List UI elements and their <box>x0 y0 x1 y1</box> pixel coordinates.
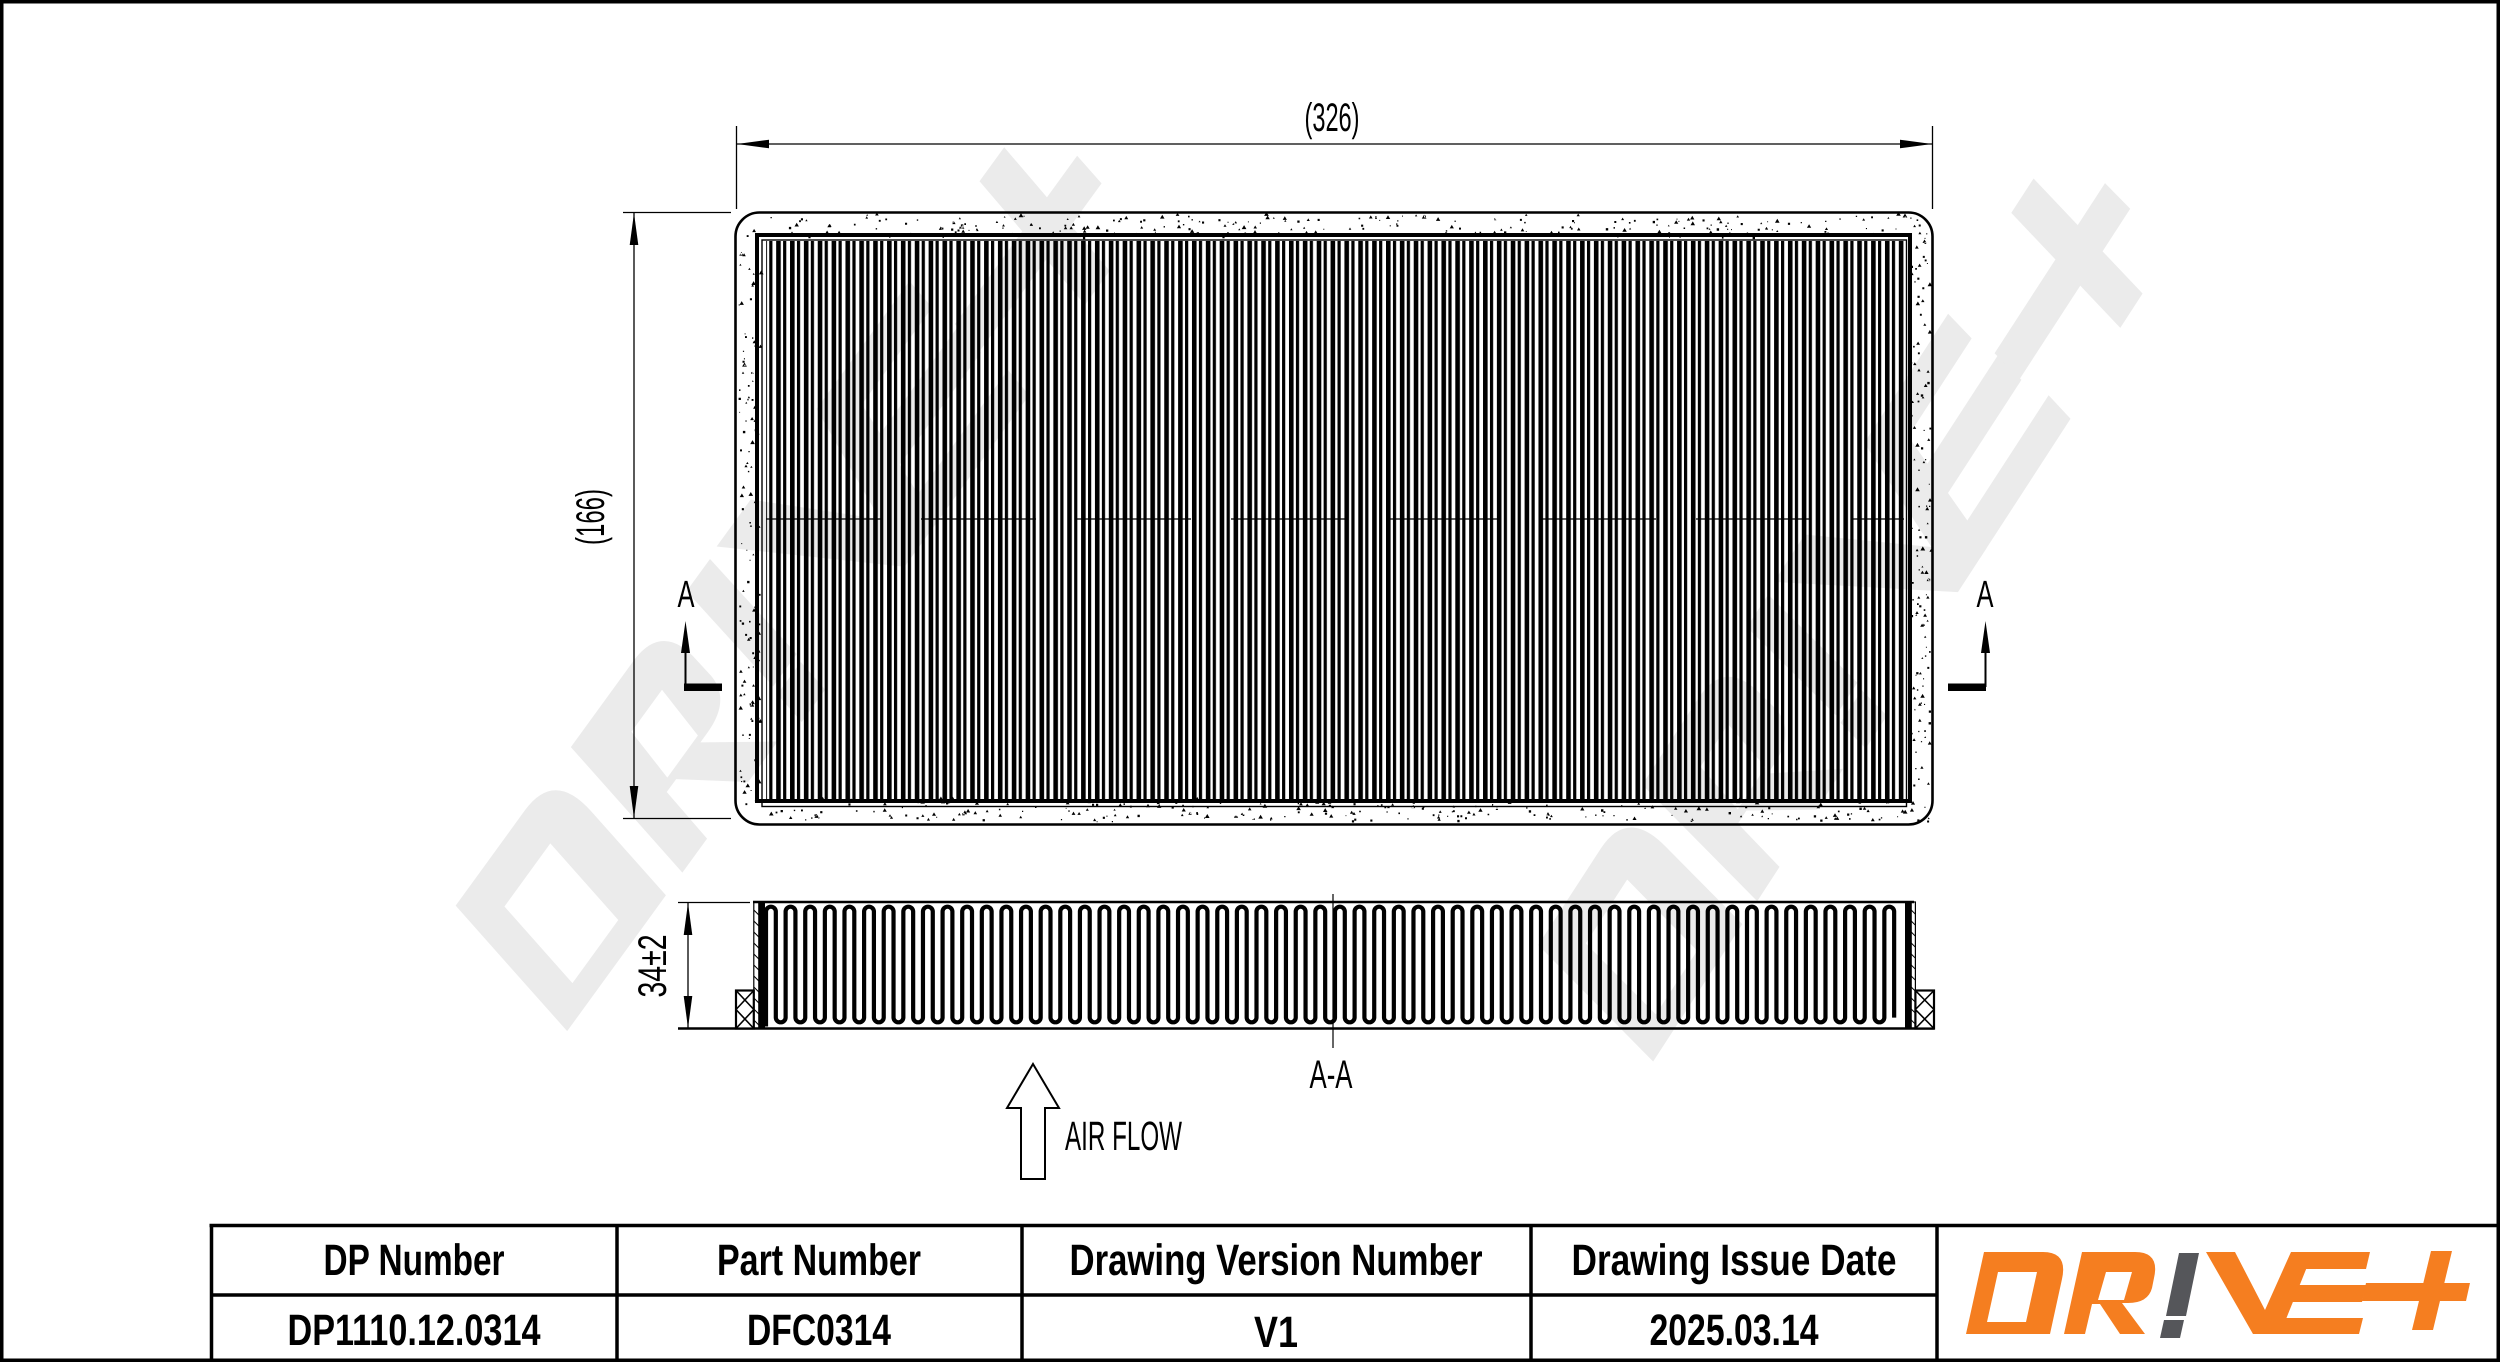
svg-text:Drawing Issue Date: Drawing Issue Date <box>1572 1236 1897 1285</box>
svg-text:DP Number: DP Number <box>324 1236 505 1285</box>
svg-text:(326): (326) <box>1305 96 1360 140</box>
svg-text:V1: V1 <box>1254 1308 1298 1357</box>
svg-text:Part Number: Part Number <box>717 1236 921 1285</box>
svg-text:34±2: 34±2 <box>631 935 675 998</box>
svg-text:A-A: A-A <box>1310 1053 1353 1097</box>
svg-text:(166): (166) <box>569 489 613 545</box>
svg-text:A: A <box>1977 574 1994 616</box>
svg-text:2025.03.14: 2025.03.14 <box>1650 1306 1819 1355</box>
svg-text:A: A <box>678 574 695 616</box>
svg-text:DP1110.12.0314: DP1110.12.0314 <box>288 1306 541 1355</box>
svg-text:Drawing Version Number: Drawing Version Number <box>1070 1236 1483 1285</box>
svg-text:AIR FLOW: AIR FLOW <box>1065 1113 1182 1159</box>
svg-text:DFC0314: DFC0314 <box>747 1306 891 1355</box>
